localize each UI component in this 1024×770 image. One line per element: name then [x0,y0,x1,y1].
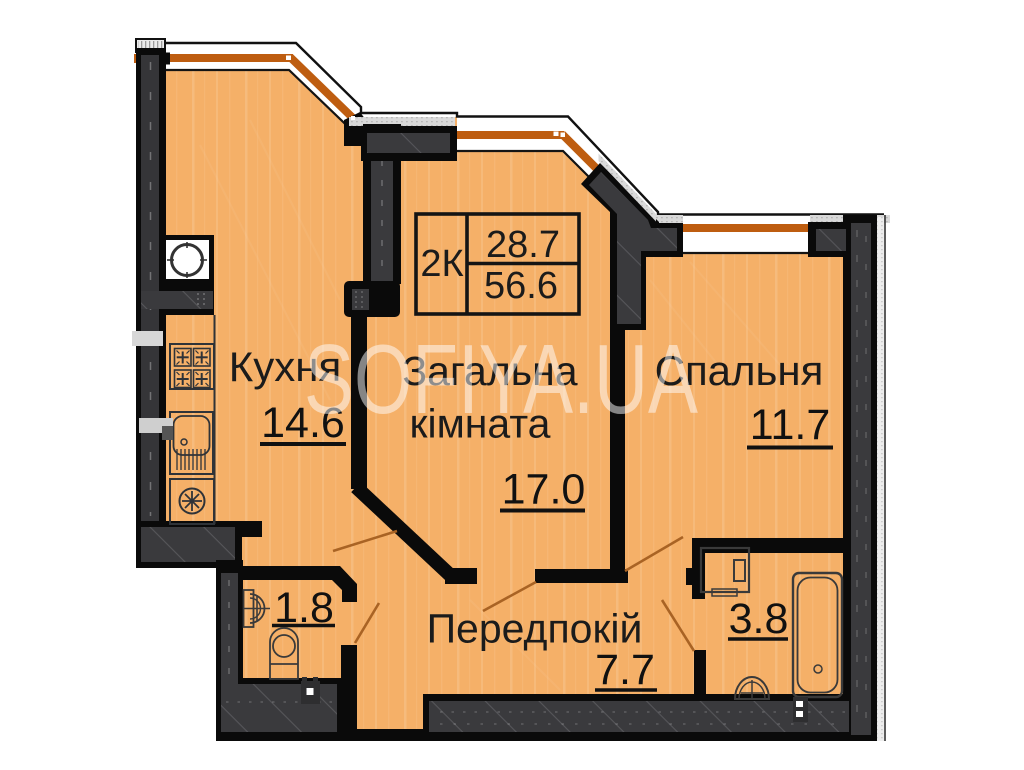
svg-text:7.7: 7.7 [595,646,655,694]
svg-text:3.8: 3.8 [729,595,789,643]
svg-text:Передпокій: Передпокій [427,606,643,652]
svg-text:SOFIYA.UA: SOFIYA.UA [304,324,698,434]
svg-text:17.0: 17.0 [502,466,586,514]
svg-text:11.7: 11.7 [750,401,831,449]
svg-text:2К: 2К [420,243,463,285]
svg-text:28.7: 28.7 [486,224,560,266]
svg-text:56.6: 56.6 [484,265,558,307]
